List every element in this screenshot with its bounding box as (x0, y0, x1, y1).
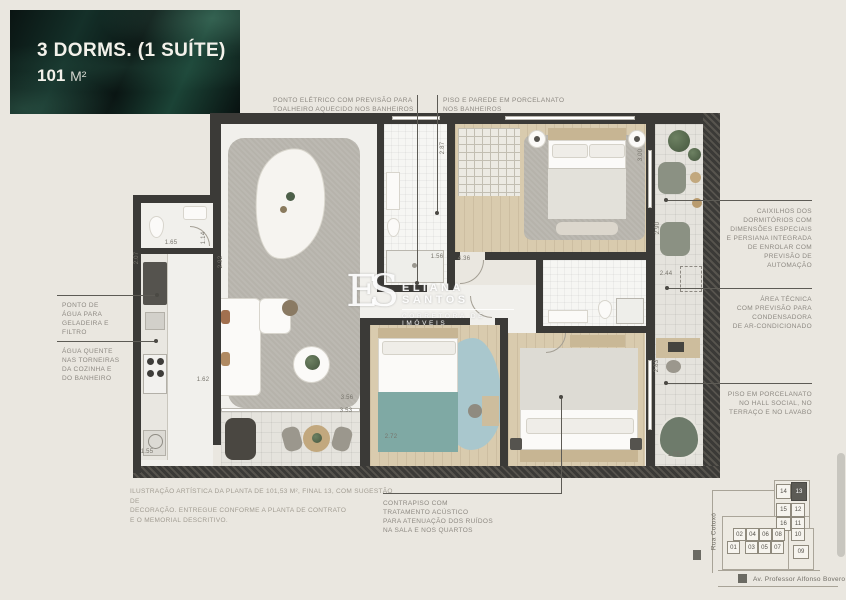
window-suite (505, 116, 635, 120)
bed3-blanket (520, 348, 638, 410)
dimension-label: 2.90 (655, 222, 661, 234)
leader-dot-contrapiso (559, 395, 563, 399)
disclaimer: ILUSTRAÇÃO ARTÍSTICA DA PLANTA DE 101,53… (130, 487, 400, 525)
keymap-unit-03: 03 (745, 541, 758, 554)
keymap-unit-10: 10 (791, 528, 805, 541)
watermark-name: ELIANA SANTOS (402, 282, 514, 306)
lavabo-sink (183, 206, 207, 220)
watermark-text: ELIANA SANTOS CORRETORA DE IMÓVEIS (402, 282, 514, 327)
suite-pillow-r (589, 144, 625, 158)
wall-top (210, 113, 720, 124)
terrace-armchair-1 (658, 162, 686, 194)
dimension-label: 3.00 (638, 149, 644, 161)
sofa-pillow-2 (221, 352, 230, 366)
terrace-side-table (690, 172, 701, 183)
dimension-label: 1.56 (431, 254, 443, 260)
dimension-label: 4.36 (458, 256, 470, 262)
watermark: ES ELIANA SANTOS CORRETORA DE IMÓVEIS (346, 270, 516, 322)
keymap-unit-08: 08 (772, 528, 785, 541)
keymap-unit-04: 04 (746, 528, 759, 541)
keymap-lot-top-line (713, 490, 775, 491)
bed2-pillows (382, 341, 456, 355)
leader-caixilhos (667, 200, 812, 201)
wall-bath1-right (447, 124, 455, 290)
scrollbar-thumb[interactable] (837, 453, 845, 557)
keymap-unit-12: 12 (791, 503, 805, 517)
leader-contrapiso-h (383, 493, 562, 494)
wall-bath2-left (536, 260, 543, 332)
table-decor-2 (280, 206, 287, 213)
sofa-pillow (221, 310, 230, 324)
dimension-label: 1.05 (668, 452, 680, 458)
terrace-desk-chair (666, 360, 681, 373)
dimension-label: 1.55 (141, 449, 153, 455)
leader-dot-ponto-agua (155, 293, 159, 297)
dimension-label: 3.53 (340, 408, 352, 414)
watermark-monogram: ES (346, 270, 390, 314)
wall-suite-bottom (485, 252, 655, 260)
suite-bench (556, 222, 618, 235)
suite-duvet (548, 168, 626, 219)
annotation-area-tecnica: ÁREA TÉCNICA COM PREVISÃO PARA CONDENSAD… (700, 295, 812, 331)
terrace-table-plant (312, 433, 322, 443)
page: 3 DORMS. (1 SUÍTE) 101 M² (0, 0, 846, 600)
bed2-desk (482, 396, 499, 426)
bath2-shower (616, 298, 644, 324)
coffee-table-plant (305, 355, 320, 370)
annotation-piso-porcelanato: PISO EM PORCELANATO NO HALL SOCIAL, NO T… (700, 390, 812, 417)
keymap-street-vertical-label: Rua Cotoxó (711, 508, 718, 556)
keymap-unit-09: 09 (793, 545, 809, 559)
terrace-plant-1 (668, 130, 690, 152)
wall-bath2-bottom (536, 326, 654, 333)
leader-piso-parede (437, 95, 438, 213)
terrace-plant-2 (688, 148, 701, 161)
annotation-agua-quente: ÁGUA QUENTE NAS TORNEIRAS DA COZINHA E D… (62, 347, 157, 383)
keymap-unit-14: 14 (776, 484, 791, 499)
burner-2 (157, 358, 164, 365)
annotation-ponto-agua: PONTO DE ÁGUA PARA GELADEIRA E FILTRO (62, 301, 157, 337)
terrace-laptop (668, 342, 684, 352)
leader-agua-quente (57, 341, 157, 342)
watermark-subtitle: CORRETORA DE IMÓVEIS (402, 313, 514, 327)
dimension-label: 1.65 (165, 240, 177, 246)
bed3-dresser (570, 335, 625, 347)
window-bed3-terrace (648, 360, 652, 430)
leader-piso-porcelanato (667, 383, 812, 384)
dimension-label: 2.72 (385, 434, 397, 440)
bath2-vanity (548, 310, 588, 323)
suite-lamp-r (634, 136, 640, 142)
bath1-vanity (386, 172, 400, 210)
annotation-ponto-eletrico: PONTO ELÉTRICO COM PREVISÃO PARA TOALHEI… (273, 96, 415, 114)
keymap-marker-2 (738, 574, 747, 583)
bed2-desk-chair (468, 404, 482, 418)
bed3-headboard (520, 450, 638, 462)
annotation-piso-parede: PISO E PAREDE EM PORCELANATO NOS BANHEIR… (443, 96, 573, 114)
leader-dot-caixilhos (664, 198, 668, 202)
keymap-lot-bottom-line (718, 570, 820, 571)
dimension-label: 2.92 (218, 256, 224, 268)
leader-dot-piso-parede (435, 211, 439, 215)
leader-dot-agua-quente (154, 339, 158, 343)
leader-ponto-agua (57, 295, 158, 296)
dimension-label: 3.56 (341, 395, 353, 401)
watermark-divider (402, 309, 514, 310)
suite-pillow-l (552, 144, 588, 158)
leader-area-tecnica (668, 288, 812, 289)
keymap-unit-02: 02 (733, 528, 746, 541)
wall-bottom-hatched (133, 466, 720, 478)
leader-dot-area-tecnica (665, 286, 669, 290)
wall-kitchen-living (213, 195, 221, 445)
fridge (143, 262, 167, 305)
table-decor (286, 192, 295, 201)
keymap-avenue-line (718, 586, 838, 587)
wall-left-upper (210, 113, 221, 203)
bed3-nightstand-r (630, 438, 642, 450)
side-stool (282, 300, 298, 316)
annotation-contrapiso: CONTRAPISO COM TRATAMENTO ACÚSTICO PARA … (383, 499, 543, 535)
dimension-label: 2.87 (440, 142, 446, 154)
bed2-teal-blanket (378, 392, 458, 452)
keymap-unit-13: 13 (791, 482, 807, 501)
key-map: Rua Cotoxó Av. Professor Alfonso Bovero … (685, 450, 846, 600)
wall-living-bed2 (360, 318, 370, 466)
suite-lamp-l (534, 136, 540, 142)
window-bath1 (392, 116, 440, 120)
keymap-marker-1 (693, 550, 701, 560)
keymap-street-horizontal-label: Av. Professor Alfonso Bovero (753, 576, 843, 583)
dimension-label: 2.44 (660, 271, 672, 277)
leader-ponto-eletrico (417, 95, 418, 283)
keymap-unit-07: 07 (771, 541, 784, 554)
washer-door (148, 434, 163, 449)
wall-bed2-bed3 (500, 318, 508, 466)
window-suite-terrace (648, 150, 652, 208)
keymap-unit-15: 15 (776, 503, 791, 517)
wall-lavabo-kitchen (141, 248, 213, 254)
wall-wing-top (133, 195, 221, 203)
burner-4 (157, 370, 164, 377)
dimension-label: 2.07 (134, 252, 140, 264)
keymap-unit-06: 06 (759, 528, 772, 541)
dimension-label: 2.83 (654, 360, 660, 372)
bed3-nightstand-l (510, 438, 522, 450)
leader-dot-ponto-eletrico (415, 281, 419, 285)
annotation-caixilhos: CAIXILHOS DOS DORMITÓRIOS COM DIMENSÕES … (700, 207, 812, 270)
dimension-label: 1.14 (201, 232, 207, 244)
dimension-label: 1.62 (197, 377, 209, 383)
leader-dot-piso-porcelanato (664, 381, 668, 385)
leader-contrapiso-v (561, 397, 562, 493)
bed3-pillows (526, 418, 634, 434)
keymap-unit-05: 05 (758, 541, 771, 554)
terrace-armchair-2 (660, 222, 690, 256)
suite-closet (458, 128, 520, 196)
keymap-unit-01: 01 (727, 541, 740, 554)
lounge-chair (225, 418, 256, 460)
